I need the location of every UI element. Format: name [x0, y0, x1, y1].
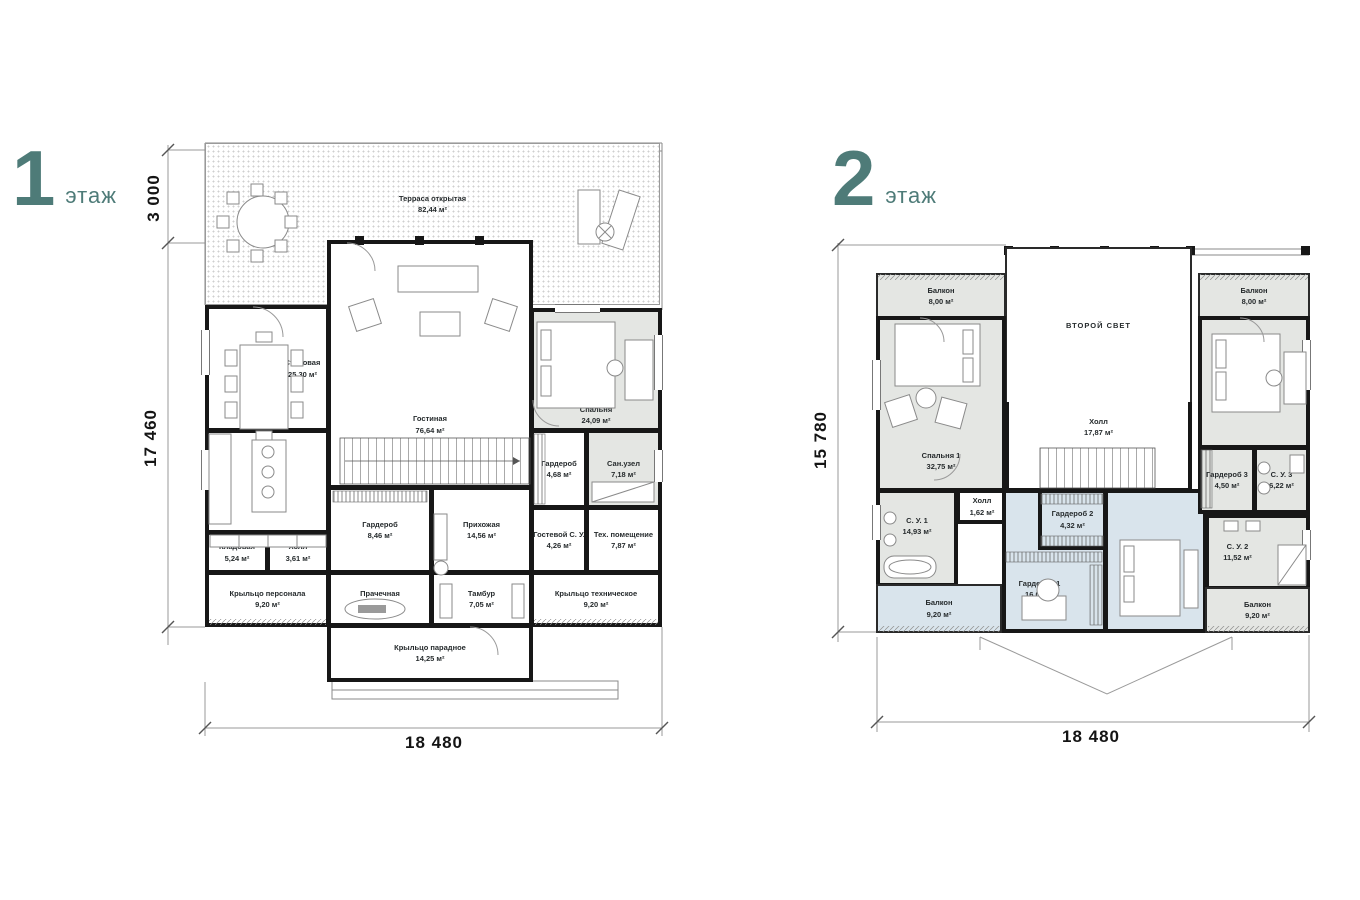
dim-floor2-height: 15 780 [811, 411, 831, 469]
window [201, 450, 210, 490]
room-holl-f1: Холл 3,61 м² [266, 531, 330, 574]
window [654, 450, 663, 482]
room-stolovaya: Столовая 25,30 м² [205, 305, 330, 432]
room-sanuzel: Сан.узел 7,18 м² [585, 429, 662, 509]
room-balkon-top-left: Балкон 8,00 м² [876, 273, 1006, 319]
room-balkon-bottom-left: Балкон 9,20 м² [876, 584, 1002, 633]
room-kladovaya: Кладовая 5,24 м² [205, 531, 269, 574]
window [201, 330, 210, 375]
room-kryltso-tehnicheskoe: Крыльцо техническое 9,20 м² [530, 571, 662, 627]
floor1-title-number: 1 [12, 148, 55, 209]
room-prachechnaya: Прачечная 12,03 м² [327, 571, 433, 627]
window [872, 360, 881, 410]
room-kryltso-personala: Крыльцо персонала 9,20 м² [205, 571, 330, 627]
room-gostevoy-su: Гостевой С. У. 4,26 м² [530, 506, 588, 574]
dim-floor1-height: 17 460 [141, 409, 161, 467]
room-teh-pomeshchenie: Тех. помещение 7,87 м² [585, 506, 662, 574]
room-spalnya-3: Спальня 3 24,09 м² [1198, 316, 1310, 449]
room-prihozhaya: Прихожая 14,56 м² [430, 486, 533, 574]
floor2-title-word: этаж [885, 183, 937, 209]
room-kryltso-paradnoe: Крыльцо парадное 14,25 м² [327, 624, 533, 682]
room-spalnya-1: Спальня 1 32,75 м² [876, 316, 1006, 492]
room-gostinaya: Гостиная 76,64 м² [327, 240, 533, 489]
floor1-title: 1 этаж [12, 148, 117, 209]
room-tambur: Тамбур 7,05 м² [430, 571, 533, 627]
room-garderob-3: Гардероб 3 4,50 м² [1198, 446, 1256, 514]
window [555, 304, 600, 313]
floor2-title-number: 2 [832, 148, 875, 209]
window [1302, 530, 1311, 560]
room-spalnya-f1: Спальня 24,09 м² [530, 308, 662, 432]
room-balkon-top-right: Балкон 8,00 м² [1198, 273, 1310, 319]
room-su-1: С. У. 1 14,93 м² [876, 489, 958, 587]
window [1302, 340, 1311, 390]
window [654, 335, 663, 390]
room-holl-small: Холл 1,62 м² [956, 489, 1008, 524]
room-su-3: С. У. 3 6,22 м² [1253, 446, 1310, 514]
room-kuhnya: Кухня 16,75 м² [205, 429, 330, 534]
floor2-title: 2 этаж [832, 148, 937, 209]
room-garderob-f1: Гардероб 8,46 м² [327, 486, 433, 574]
dim-floor1-terrace-height: 3 000 [144, 174, 164, 222]
dim-floor2-width: 18 480 [1062, 727, 1120, 747]
floorplan-sheet: 1 этаж Терраса открытая 82,44 м² Столова… [0, 0, 1360, 900]
window [872, 505, 881, 540]
room-spalnya-2: Спальня 2 21,26 м² [1104, 489, 1207, 633]
room-garderob-spalni: Гардероб 4,68 м² [530, 429, 588, 509]
dim-floor1-width: 18 480 [405, 733, 463, 753]
room-holl-f2: Холл 17,87 м² [1005, 402, 1192, 492]
room-balkon-bottom-right: Балкон 9,20 м² [1205, 587, 1310, 633]
floor1-title-word: этаж [65, 183, 117, 209]
room-vtoroy-svet: ВТОРОЙ СВЕТ [1005, 247, 1192, 405]
room-su-2: С. У. 2 11,52 м² [1205, 514, 1310, 590]
room-garderob-2: Гардероб 2 4,32 м² [1038, 489, 1107, 550]
